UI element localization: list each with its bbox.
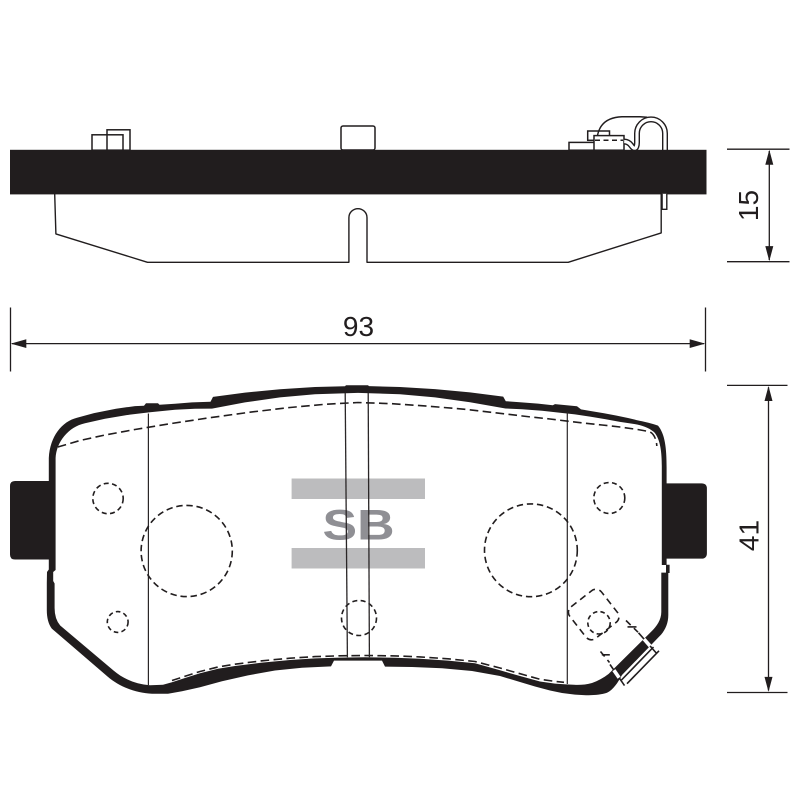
svg-text:41: 41 [733,520,764,551]
svg-text:15: 15 [733,190,764,221]
svg-text:93: 93 [343,311,374,342]
svg-text:SB: SB [323,502,395,550]
